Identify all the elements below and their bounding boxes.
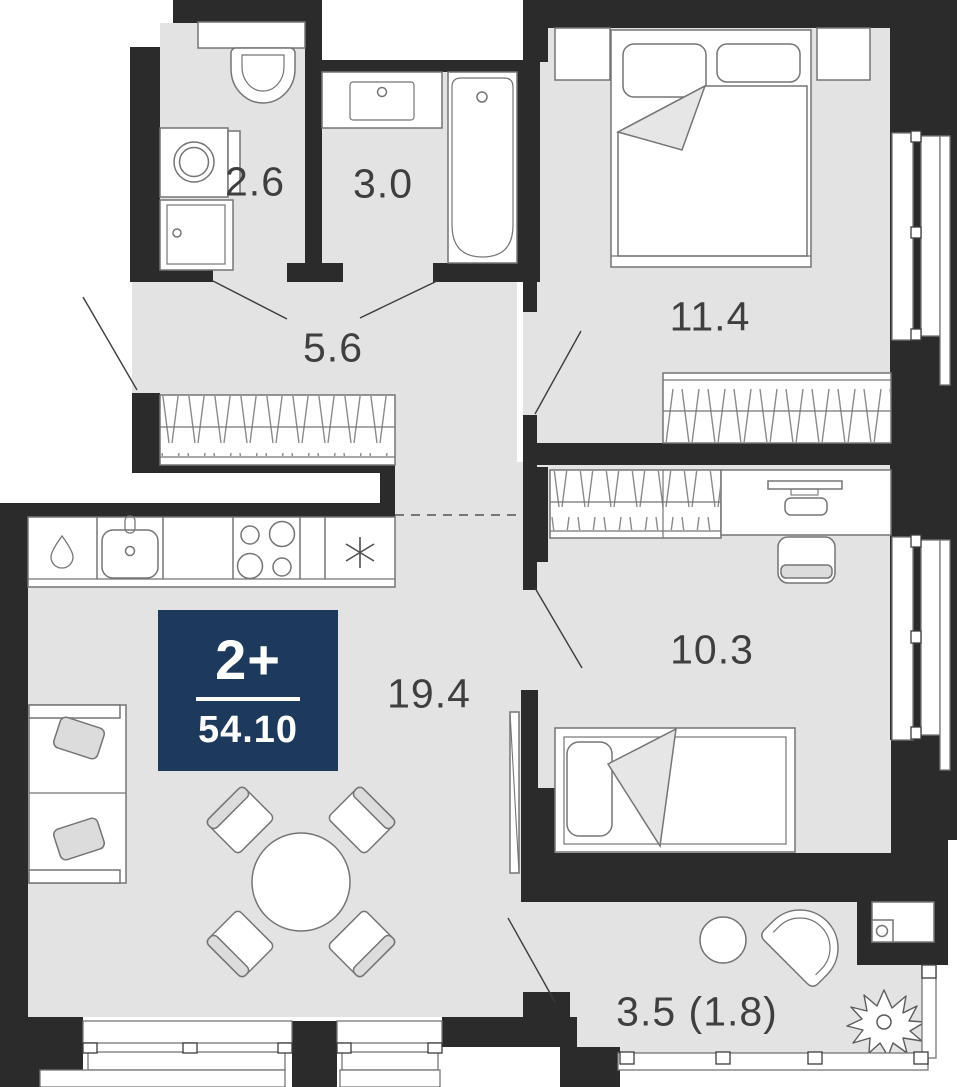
nightstand-right <box>817 28 870 80</box>
washing-machine-icon <box>160 128 228 197</box>
exterior-strip <box>948 840 957 1087</box>
bedroom2-window <box>892 535 950 770</box>
badge-room-count: 2+ <box>215 632 281 688</box>
label-bathroom-area: 3.0 <box>353 161 413 208</box>
label-hallway-area: 5.6 <box>303 325 363 372</box>
badge-divider <box>196 697 300 701</box>
kitchen-counter-outline <box>28 517 395 587</box>
floor-hallway2 <box>395 462 523 527</box>
floor-plan: 2.6 3.0 5.6 11.4 10.3 19.4 3.5 (1.8) 2+ … <box>0 0 957 1087</box>
dining-table-icon <box>252 833 350 931</box>
toilet-tank <box>198 22 305 48</box>
desk-chair-back <box>781 565 832 578</box>
monitor-icon <box>768 481 842 489</box>
floor-bedroom2-door-opening <box>523 590 537 690</box>
bedroom-wardrobe <box>663 373 891 443</box>
bedroom2-wardrobe <box>550 470 721 538</box>
keyboard <box>785 498 827 515</box>
badge-total-area: 54.10 <box>198 711 298 749</box>
label-balcony-area: 3.5 (1.8) <box>616 989 778 1036</box>
nightstand-left <box>555 28 610 80</box>
balcony-table-icon <box>700 917 746 963</box>
floor-bedroom-door-opening <box>523 312 537 415</box>
bathtub-outer <box>448 72 517 263</box>
sofa-icon <box>29 705 126 883</box>
label-bedroom-area: 11.4 <box>670 294 751 341</box>
entrance-door-swing <box>83 297 137 390</box>
apartment-badge: 2+ 54.10 <box>158 610 338 771</box>
label-bedroom2-area: 10.3 <box>670 627 754 674</box>
pillow-right <box>717 44 800 82</box>
hallway-wardrobe <box>160 395 395 465</box>
radiator-panel <box>510 712 519 873</box>
kitchen-counter <box>28 516 395 587</box>
floor-bath-door-opening <box>343 263 433 282</box>
label-wc-area: 2.6 <box>225 159 285 206</box>
ac-unit-small-box <box>872 920 893 942</box>
pillow-left <box>623 44 706 97</box>
single-bed-pillow <box>567 742 612 836</box>
floor-balcony-door-opening <box>521 902 570 992</box>
floor-plan-drawing <box>0 0 957 1087</box>
floor-entrance-opening <box>132 282 160 393</box>
wc-cabinet <box>160 200 233 270</box>
label-living-area: 19.4 <box>387 671 471 718</box>
living-window-right <box>337 1021 442 1087</box>
